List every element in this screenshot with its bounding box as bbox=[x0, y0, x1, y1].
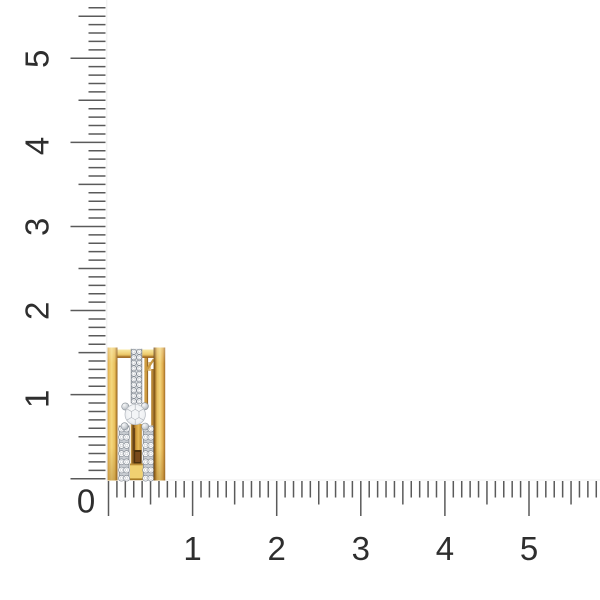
svg-text:2: 2 bbox=[19, 302, 56, 320]
svg-text:3: 3 bbox=[352, 530, 370, 567]
svg-text:2: 2 bbox=[268, 530, 286, 567]
svg-text:5: 5 bbox=[520, 530, 538, 567]
svg-text:0: 0 bbox=[77, 483, 95, 520]
svg-text:5: 5 bbox=[19, 50, 56, 68]
svg-text:1: 1 bbox=[19, 390, 56, 408]
svg-text:3: 3 bbox=[19, 218, 56, 236]
svg-text:4: 4 bbox=[19, 137, 56, 155]
svg-text:4: 4 bbox=[436, 530, 454, 567]
svg-text:1: 1 bbox=[183, 530, 201, 567]
